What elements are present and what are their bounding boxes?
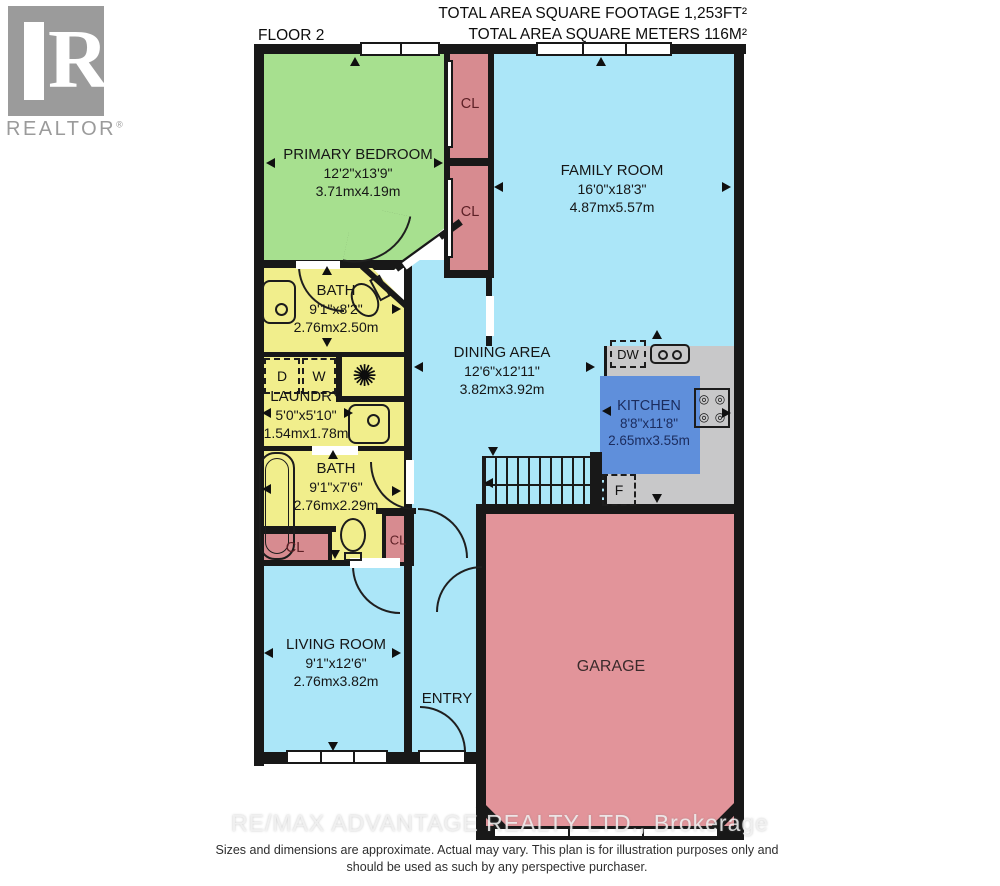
wall: [342, 396, 412, 402]
dim-arrow-right-icon: [586, 362, 595, 372]
realtor-wordmark-text: REALTOR: [6, 118, 116, 140]
disclaimer-line-2: should be used as such by any perspectiv…: [147, 860, 847, 874]
registered-symbol: ®: [116, 119, 125, 129]
realtor-logo-letter: R: [48, 10, 109, 110]
total-area-footage: TOTAL AREA SQUARE FOOTAGE 1,253FT²: [415, 5, 747, 23]
sink-basin: [672, 350, 682, 360]
window-divider: [625, 44, 627, 54]
stair-arrow-icon: [484, 478, 493, 488]
dim-arrow-up-icon: [322, 266, 332, 275]
realtor-logo-icon: R: [8, 6, 104, 116]
toilet-tank: [344, 552, 362, 561]
label-primary-bedroom: PRIMARY BEDROOM 12'2"x13'9" 3.71mx4.19m: [283, 146, 432, 200]
toilet-bowl-icon: [340, 518, 366, 552]
dim-arrow-right-icon: [392, 486, 401, 496]
closet-label: CL: [461, 96, 480, 112]
family-room-window: [536, 42, 672, 56]
room-dim-metric: 2.65mx3.55m: [608, 432, 690, 449]
dim-arrow-right-icon: [392, 648, 401, 658]
dishwasher-label: DW: [617, 347, 639, 362]
realtor-wordmark: REALTOR®: [6, 118, 125, 141]
room-dim-imperial: 5'0"x5'10": [264, 406, 349, 424]
dishwasher-box: DW: [610, 340, 646, 368]
door-gap: [296, 261, 340, 269]
wall: [734, 44, 744, 840]
burner-icon: ◎: [699, 393, 709, 405]
room-name: PRIMARY BEDROOM: [283, 146, 432, 164]
room-dim-imperial: 9'1"x12'6": [286, 654, 386, 672]
room-dim-imperial: 16'0"x18'3": [561, 180, 664, 198]
room-dim-imperial: 12'6"x12'11": [454, 362, 551, 380]
label-family-room: FAMILY ROOM 16'0"x18'3" 4.87mx5.57m: [561, 162, 664, 216]
floor-plan-page: R REALTOR® FLOOR 2 TOTAL AREA SQUARE FOO…: [0, 0, 1000, 886]
room-name: DINING AREA: [454, 344, 551, 362]
room-name: LAUNDRY: [264, 388, 349, 406]
brokerage-watermark: RE/MAX ADVANTAGE REALTY LTD., Brokerage: [140, 810, 860, 837]
kitchen-sink-icon: [650, 344, 690, 364]
dim-arrow-right-icon: [434, 158, 443, 168]
label-laundry: LAUNDRY 5'0"x5'10" 1.54mx1.78m: [264, 388, 349, 442]
label-entry: ENTRY: [422, 690, 473, 708]
window-divider: [582, 44, 584, 54]
dim-arrow-right-icon: [722, 182, 731, 192]
bedroom-window: [360, 42, 440, 56]
door-gap: [486, 296, 494, 336]
staircase: [482, 456, 592, 510]
wall: [476, 504, 486, 834]
floor-label: FLOOR 2: [258, 27, 324, 45]
fridge-label: F: [615, 482, 624, 498]
room-dim-imperial: 9'1"x8'2": [294, 300, 379, 318]
dim-arrow-left-icon: [494, 182, 503, 192]
room-name: LIVING ROOM: [286, 636, 386, 654]
room-name: FAMILY ROOM: [561, 162, 664, 180]
wall: [404, 558, 412, 764]
closet-slider-door: [446, 178, 453, 258]
dim-arrow-up-icon: [652, 330, 662, 339]
wall: [254, 44, 264, 766]
total-area-meters: TOTAL AREA SQUARE METERS 116M²: [415, 26, 747, 44]
room-name: BATH: [294, 282, 379, 300]
fridge-box: F: [602, 474, 636, 506]
label-kitchen: KITCHEN 8'8"x11'8" 2.65mx3.55m: [608, 398, 690, 449]
stair-direction-line: [484, 484, 590, 486]
dim-arrow-right-icon: [722, 408, 731, 418]
door-gap: [406, 460, 414, 504]
dim-arrow-up-icon: [328, 450, 338, 459]
realtor-logo-bar: [24, 22, 44, 100]
burner-icon: ◎: [715, 393, 725, 405]
dim-arrow-up-icon: [350, 57, 360, 66]
label-bath-upper: BATH 9'1"x8'2" 2.76mx2.50m: [294, 282, 379, 336]
dim-arrow-left-icon: [414, 362, 423, 372]
room-dim-metric: 2.76mx2.29m: [294, 496, 379, 514]
dim-arrow-down-icon: [322, 338, 332, 347]
living-room-window: [286, 750, 388, 764]
room-name: BATH: [294, 460, 379, 478]
room-dim-imperial: 12'2"x13'9": [283, 164, 432, 182]
bathroom-sink-icon: [262, 280, 296, 324]
washer-label: W: [312, 368, 325, 384]
sink-drain: [275, 303, 288, 316]
wall: [444, 158, 494, 166]
closet-label: CL: [286, 540, 305, 556]
wall: [444, 270, 494, 278]
burner-icon: ◎: [699, 411, 709, 423]
sink-drain: [367, 414, 380, 427]
room-dim-metric: 4.87mx5.57m: [561, 198, 664, 216]
label-garage: GARAGE: [577, 658, 645, 676]
window-divider: [353, 752, 355, 762]
closet-slider-door: [446, 60, 453, 148]
label-living-room: LIVING ROOM 9'1"x12'6" 2.76mx3.82m: [286, 636, 386, 690]
wall: [590, 452, 602, 510]
closet-label: CL: [461, 204, 480, 220]
room-dim-metric: 2.76mx3.82m: [286, 672, 386, 690]
dim-arrow-down-icon: [330, 550, 340, 559]
laundry-sink-icon: [348, 404, 390, 444]
dim-arrow-down-icon: [328, 742, 338, 751]
dim-arrow-left-icon: [262, 484, 271, 494]
room-dim-imperial: 8'8"x11'8": [608, 415, 690, 432]
room-dim-metric: 3.82mx3.92m: [454, 380, 551, 398]
room-dim-metric: 3.71mx4.19m: [283, 182, 432, 200]
dim-arrow-down-icon: [652, 494, 662, 503]
room-name: KITCHEN: [608, 398, 690, 415]
disclaimer-line-1: Sizes and dimensions are approximate. Ac…: [147, 843, 847, 857]
fan-icon: ✺: [352, 362, 377, 392]
entry-door-window: [418, 750, 466, 764]
room-dim-metric: 1.54mx1.78m: [264, 424, 349, 442]
label-dining-area: DINING AREA 12'6"x12'11" 3.82mx3.92m: [454, 344, 551, 398]
dim-arrow-left-icon: [264, 648, 273, 658]
dim-arrow-right-icon: [392, 304, 401, 314]
dim-arrow-left-icon: [266, 158, 275, 168]
dim-arrow-down-icon: [488, 447, 498, 456]
room-dim-metric: 2.76mx2.50m: [294, 318, 379, 336]
room-dim-imperial: 9'1"x7'6": [294, 478, 379, 496]
wall: [254, 44, 746, 54]
window-divider: [320, 752, 322, 762]
dryer-label: D: [277, 368, 287, 384]
closet-label: CL: [390, 533, 407, 548]
sink-basin: [658, 350, 668, 360]
window-divider: [400, 44, 402, 54]
dim-arrow-up-icon: [596, 57, 606, 66]
label-bath-lower: BATH 9'1"x7'6" 2.76mx2.29m: [294, 460, 379, 514]
